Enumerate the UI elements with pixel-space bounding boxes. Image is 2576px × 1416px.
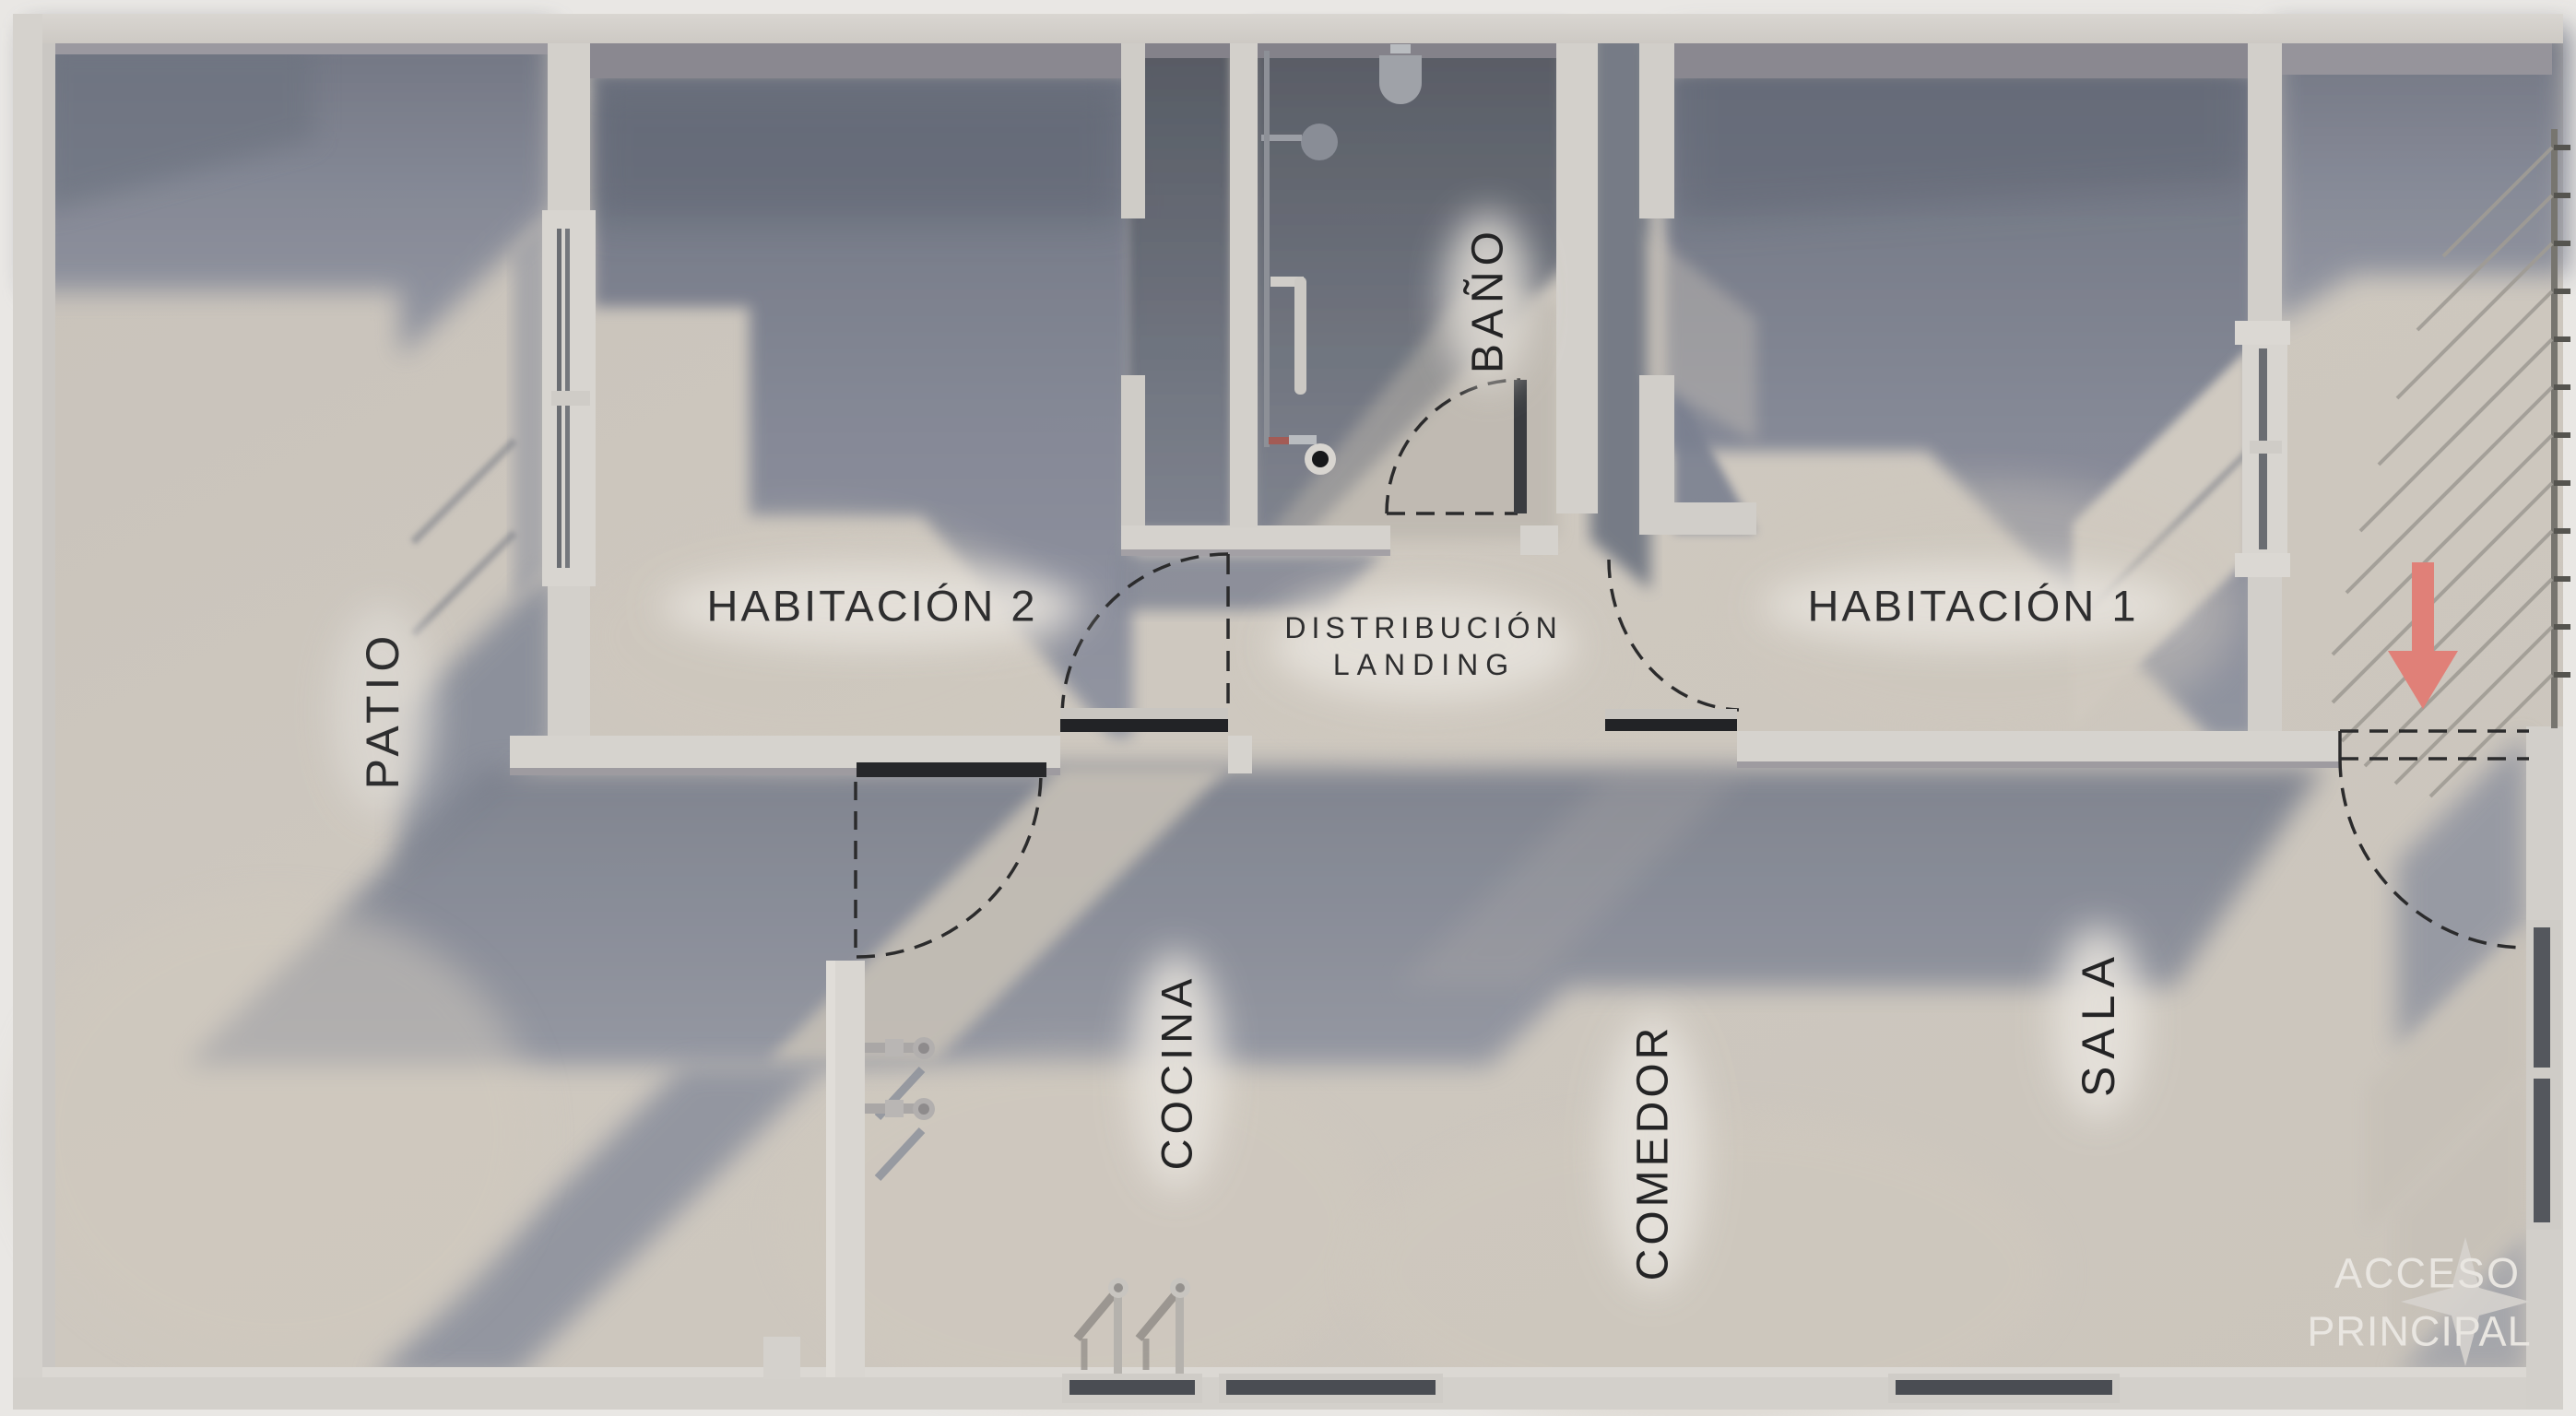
svg-text:ACCESO: ACCESO: [2334, 1250, 2521, 1297]
svg-text:COCINA: COCINA: [1152, 974, 1201, 1171]
svg-text:DISTRIBUCIÓN: DISTRIBUCIÓN: [1284, 611, 1562, 644]
svg-text:COMEDOR: COMEDOR: [1629, 1024, 1678, 1281]
svg-text:HABITACIÓN 2: HABITACIÓN 2: [707, 582, 1038, 631]
svg-text:BAÑO: BAÑO: [1463, 226, 1513, 373]
svg-text:SALA: SALA: [2073, 950, 2124, 1097]
svg-text:LANDING: LANDING: [1333, 648, 1516, 681]
svg-text:PRINCIPAL: PRINCIPAL: [2307, 1308, 2531, 1355]
svg-text:PATIO: PATIO: [357, 631, 408, 790]
svg-text:HABITACIÓN 1: HABITACIÓN 1: [1808, 582, 2139, 631]
